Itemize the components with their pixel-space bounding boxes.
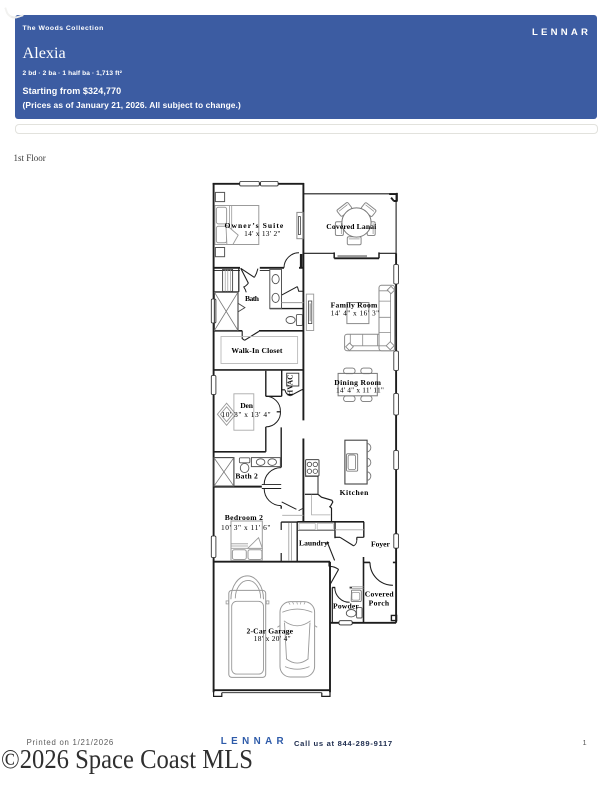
svg-text:10' 3" x 13' 4": 10' 3" x 13' 4" xyxy=(222,410,271,419)
svg-text:18' x 20' 4": 18' x 20' 4" xyxy=(254,634,291,643)
svg-text:Porch: Porch xyxy=(369,599,390,608)
svg-text:Covered: Covered xyxy=(365,589,395,598)
svg-text:Bath 2: Bath 2 xyxy=(235,471,258,480)
svg-text:HVAC: HVAC xyxy=(286,374,295,395)
svg-text:Kitchen: Kitchen xyxy=(340,488,369,497)
svg-text:Foyer: Foyer xyxy=(371,539,391,548)
svg-text:Walk-In Closet: Walk-In Closet xyxy=(231,346,282,355)
svg-text:Bath: Bath xyxy=(245,294,260,303)
svg-text:Powder: Powder xyxy=(333,602,359,611)
svg-text:Covered Lanai: Covered Lanai xyxy=(326,222,376,231)
svg-text:Bedroom 2: Bedroom 2 xyxy=(225,513,263,522)
svg-text:14' 4" x 11' 11": 14' 4" x 11' 11" xyxy=(336,385,384,394)
svg-text:Laundry: Laundry xyxy=(299,538,328,547)
svg-text:Den: Den xyxy=(240,401,253,410)
svg-text:14' x 13' 2": 14' x 13' 2" xyxy=(244,229,280,238)
svg-text:14' 4" x 16' 3": 14' 4" x 16' 3" xyxy=(331,309,380,318)
svg-text:10' 3" x 11' 6": 10' 3" x 11' 6" xyxy=(221,523,270,532)
